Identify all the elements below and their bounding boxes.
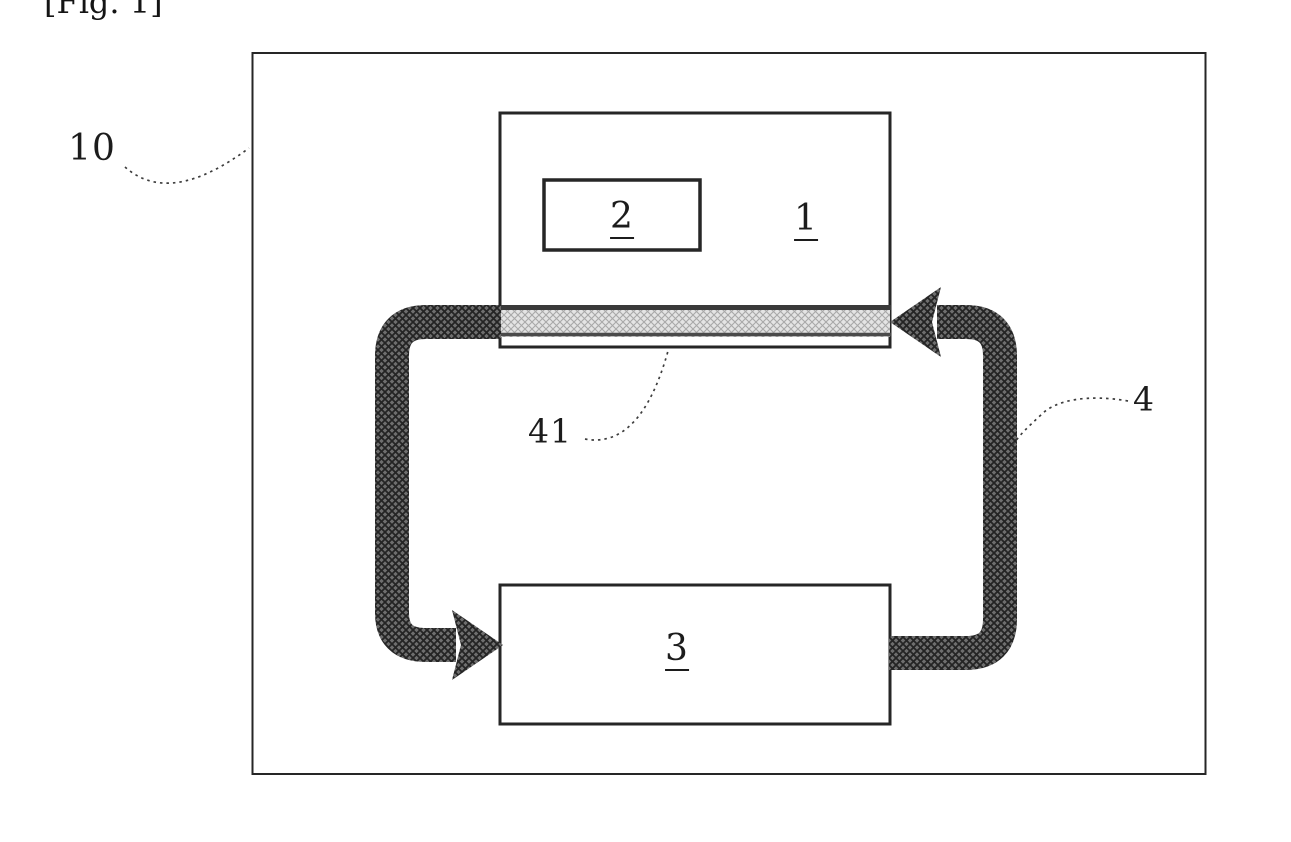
label-unit-1: 1 [794, 201, 818, 241]
figure-caption: [Fig. 1] [44, 0, 163, 18]
label-loop-4: 4 [1133, 383, 1155, 416]
figure-drawing [0, 0, 1291, 842]
strip-41 [499, 305, 891, 337]
label-system-10: 10 [68, 131, 116, 167]
patent-figure-page: [Fig. 1] 10 1 2 3 41 4 [0, 0, 1291, 842]
unit-3-rect [500, 585, 890, 724]
label-unit-2: 2 [610, 199, 634, 239]
label-unit-3: 3 [665, 631, 689, 671]
label-strip-41: 41 [528, 415, 572, 448]
leader-line-10 [125, 148, 249, 183]
